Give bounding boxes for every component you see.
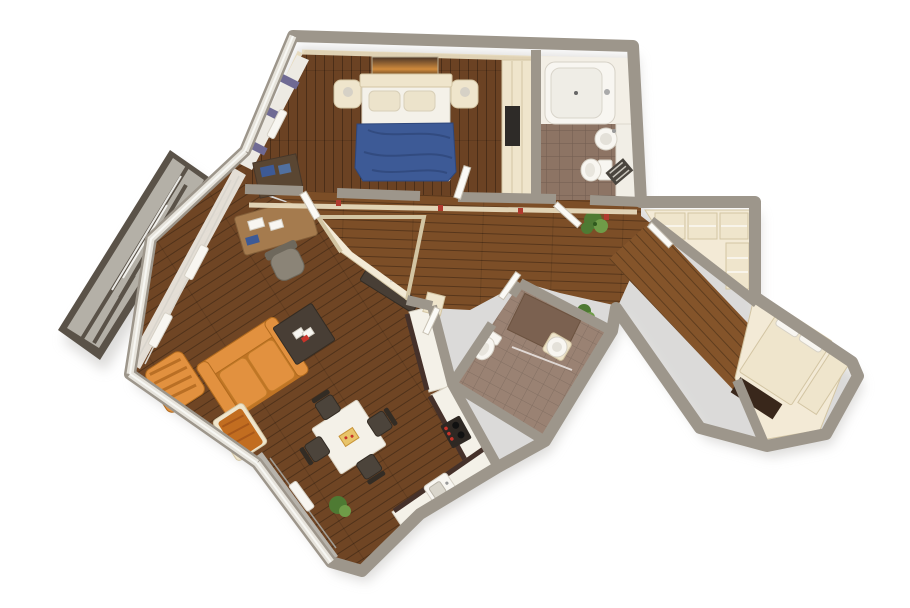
nook-stub-wall <box>407 300 432 306</box>
hall-north-wall-1 <box>245 189 303 191</box>
wardrobe-dark-panel <box>505 106 520 146</box>
wall-switch-2 <box>518 208 523 214</box>
wall-switch-4 <box>604 214 609 220</box>
pillow-left <box>369 91 400 111</box>
hall-north-wall-3 <box>458 197 556 199</box>
basin-tap <box>612 129 616 133</box>
toilet <box>581 159 612 181</box>
nightstand-left <box>334 80 361 108</box>
bathroom <box>538 56 639 200</box>
floor-plan-canvas <box>0 0 910 608</box>
hall-north-wall-2 <box>337 193 420 196</box>
wall-switch-1 <box>438 205 443 211</box>
floor-plan-3d-render <box>0 0 910 608</box>
lamp-left <box>343 87 353 97</box>
hall-north-wall-4 <box>590 200 641 202</box>
bathtub <box>545 62 615 124</box>
double-bed <box>355 74 456 181</box>
wall-switch-3 <box>336 200 341 206</box>
bathtub-drain <box>574 91 578 95</box>
washbasin <box>595 128 617 150</box>
wardrobe <box>502 60 532 198</box>
lamp-right <box>460 87 470 97</box>
pillow-right <box>404 91 435 111</box>
nightstand-right <box>451 80 478 108</box>
headboard <box>360 74 452 87</box>
bathtub-tap <box>604 89 610 95</box>
